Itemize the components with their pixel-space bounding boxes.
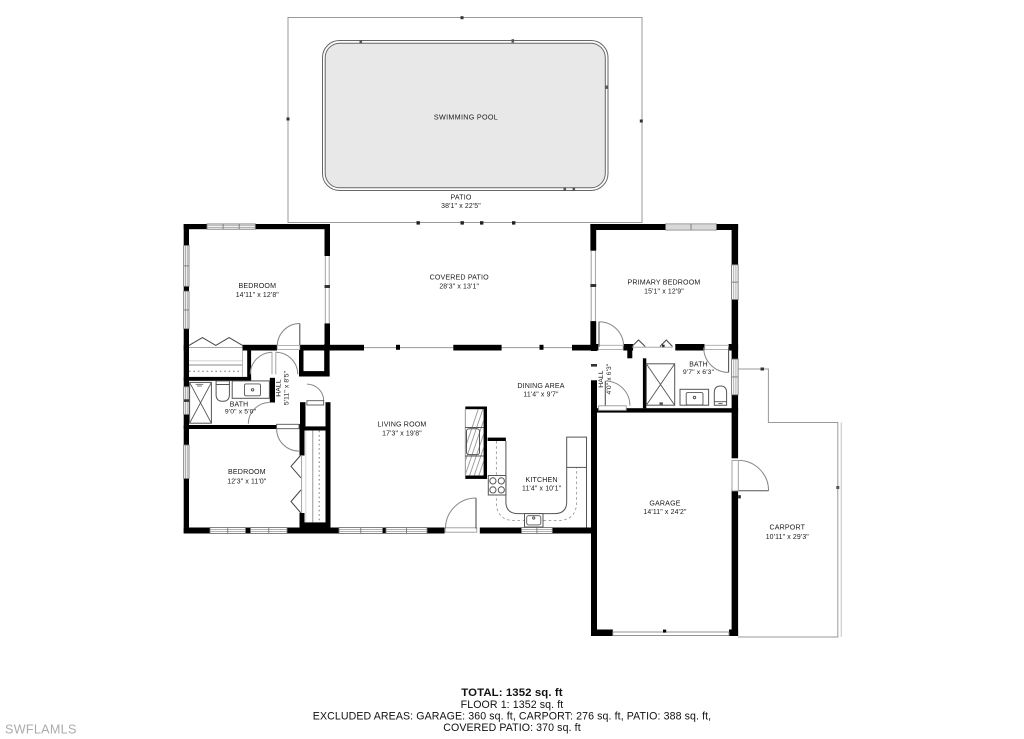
svg-text:9'7" x 6'3": 9'7" x 6'3" <box>683 369 715 376</box>
svg-text:BATH: BATH <box>689 361 707 368</box>
svg-text:TOTAL: 1352 sq. ft: TOTAL: 1352 sq. ft <box>461 687 562 699</box>
svg-text:BEDROOM: BEDROOM <box>228 468 266 476</box>
svg-text:SWIMMING POOL: SWIMMING POOL <box>434 113 498 122</box>
svg-text:LIVING ROOM: LIVING ROOM <box>378 420 427 428</box>
svg-text:17'3" x 19'8": 17'3" x 19'8" <box>382 430 422 437</box>
svg-text:CARPORT: CARPORT <box>769 524 805 532</box>
svg-text:11'4" x 9'7": 11'4" x 9'7" <box>523 392 559 399</box>
svg-text:38'1" x 22'5": 38'1" x 22'5" <box>441 203 481 210</box>
svg-text:4'0" x 6'3": 4'0" x 6'3" <box>606 363 613 394</box>
svg-text:14'11" x 12'8": 14'11" x 12'8" <box>236 292 280 299</box>
svg-text:28'3" x 13'1": 28'3" x 13'1" <box>439 283 479 290</box>
svg-text:KITCHEN: KITCHEN <box>526 476 558 484</box>
svg-text:BEDROOM: BEDROOM <box>238 282 276 290</box>
svg-text:HALL: HALL <box>598 370 605 388</box>
svg-text:SWFLAMLS: SWFLAMLS <box>5 723 77 737</box>
svg-text:11'4" x 10'1": 11'4" x 10'1" <box>522 485 562 492</box>
svg-text:DINING AREA: DINING AREA <box>517 382 564 390</box>
svg-text:5'11" x 8'5": 5'11" x 8'5" <box>283 370 290 405</box>
svg-text:COVERED PATIO: COVERED PATIO <box>430 273 490 281</box>
svg-text:10'11" x 29'3": 10'11" x 29'3" <box>766 534 810 541</box>
svg-text:PRIMARY BEDROOM: PRIMARY BEDROOM <box>628 279 701 287</box>
svg-text:GARAGE: GARAGE <box>649 500 680 508</box>
svg-text:PATIO: PATIO <box>451 193 472 201</box>
svg-text:HALL: HALL <box>275 379 282 397</box>
svg-text:15'1" x 12'9": 15'1" x 12'9" <box>644 288 684 295</box>
svg-text:BATH: BATH <box>230 401 248 408</box>
svg-text:14'11" x 24'2": 14'11" x 24'2" <box>643 509 687 516</box>
svg-text:COVERED PATIO: 370 sq. ft: COVERED PATIO: 370 sq. ft <box>443 722 581 734</box>
svg-text:EXCLUDED AREAS: GARAGE: 360 sq: EXCLUDED AREAS: GARAGE: 360 sq. ft, CARP… <box>313 711 711 723</box>
svg-text:9'0" x 5'0": 9'0" x 5'0" <box>225 409 257 416</box>
svg-text:FLOOR 1: 1352 sq. ft: FLOOR 1: 1352 sq. ft <box>461 699 564 711</box>
svg-text:12'3" x 11'0": 12'3" x 11'0" <box>227 479 267 486</box>
